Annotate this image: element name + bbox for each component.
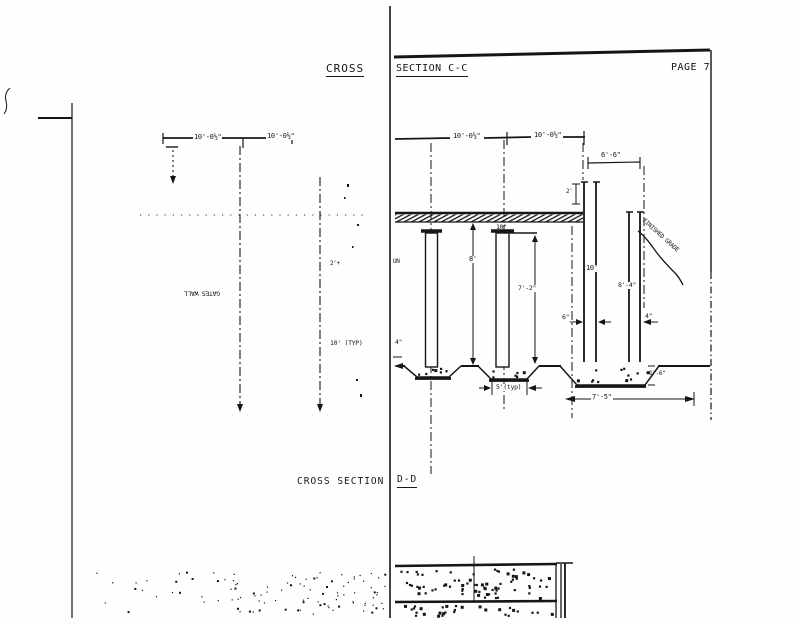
dim-label-4in: 4" xyxy=(645,313,652,320)
dim-label-4in-left: 4" xyxy=(395,339,402,346)
dim-label-10ft: 10' xyxy=(585,265,599,272)
dim-label-left-span1: 10'-0½" xyxy=(193,134,222,141)
footing3-stipple xyxy=(577,368,649,382)
footing1-stipple xyxy=(419,368,448,375)
dim-label-6-6: 6'-6" xyxy=(601,152,621,159)
page-number: PAGE 7 xyxy=(671,63,710,73)
bottom-left-stipple-dense xyxy=(204,572,387,615)
dim-label-cc-span2: 10'-0½" xyxy=(533,132,562,139)
scanned-drawing-page: CROSS SECTION C-C PAGE 7 10'-0½" 10'-0½"… xyxy=(0,0,800,618)
slab-stipple-lower xyxy=(405,605,554,617)
dim-label-8-4: 8'-4" xyxy=(617,282,637,289)
dim-label-6in: 6" xyxy=(562,314,569,321)
dim-label-left-span2: 10'-0½" xyxy=(266,133,295,140)
section-dd-linework xyxy=(395,556,573,618)
title-section-cc: SECTION C-C xyxy=(396,64,468,77)
left-elevation-linework xyxy=(140,133,368,412)
dim-label-8ft: 8' xyxy=(468,256,478,263)
dim-label-cc-span1: 10'-0½" xyxy=(452,133,481,140)
page-borders xyxy=(4,6,711,618)
dim-label-2plus: 2'+ xyxy=(330,261,340,267)
slab-stipple-upper xyxy=(401,569,551,600)
dim-label-1-6: 1'-6" xyxy=(649,371,666,377)
footing2-stipple xyxy=(493,371,526,378)
bottom-left-stipple-sparse xyxy=(96,572,202,613)
dim-label-5typ: 5'(typ) xyxy=(495,384,522,391)
title-cross-section: CROSS SECTION xyxy=(297,477,384,487)
label-un: UN xyxy=(393,259,400,265)
dim-label-7-5: 7'-5" xyxy=(591,394,613,401)
dim-label-2ft: 2' xyxy=(566,189,573,195)
title-section-dd: D-D xyxy=(397,475,417,488)
drawing-linework xyxy=(0,0,800,618)
dim-label-10in: 10" xyxy=(496,224,507,231)
wall-label: GATES WALL xyxy=(184,290,220,297)
title-cross: CROSS xyxy=(326,63,364,77)
dim-label-typ: 10' (TYP) xyxy=(330,340,363,347)
dim-label-7-2: 7'-2" xyxy=(517,285,537,292)
